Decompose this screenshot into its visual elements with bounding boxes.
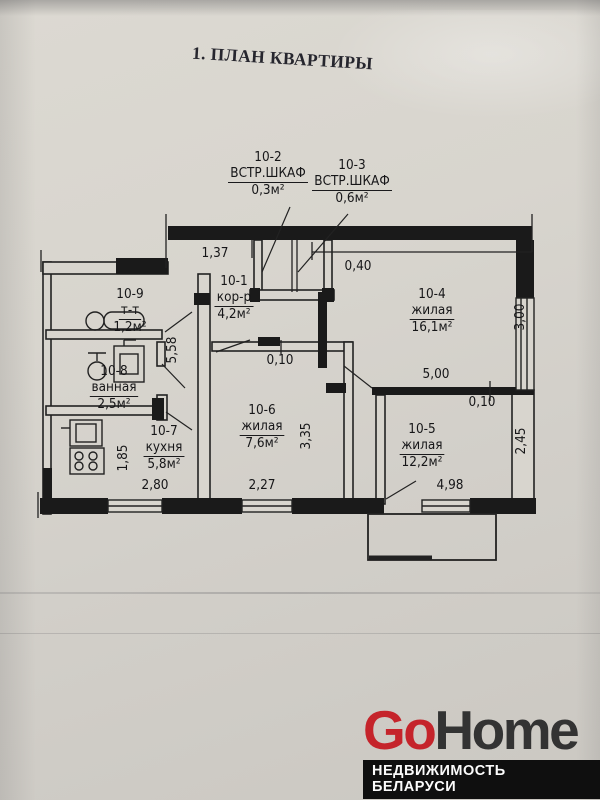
dimension-label: 2,27 xyxy=(236,478,288,494)
room-area: 16,1м² xyxy=(391,320,473,336)
room-area: 7,6м² xyxy=(221,436,303,452)
dimension-label: 3,35 xyxy=(299,416,315,457)
dimension-label: 0,10 xyxy=(254,353,306,369)
dimension-label: 5,58 xyxy=(165,330,181,371)
room-name: жилая xyxy=(240,419,285,436)
dimension-label: 5,00 xyxy=(410,367,462,383)
room-id: 10-3 xyxy=(300,158,404,174)
logo-go-text: Go xyxy=(363,699,434,761)
dimension-label: 1,37 xyxy=(187,246,243,262)
room-id: 10-8 xyxy=(71,364,157,380)
dimension-label: 1,85 xyxy=(116,438,132,479)
room-id: 10-7 xyxy=(123,424,205,440)
logo-home-text: Home xyxy=(434,699,577,761)
room-id: 10-1 xyxy=(193,274,275,290)
room-name: т-т xyxy=(119,303,141,320)
room-name: ВСТР.ШКАФ xyxy=(228,166,307,183)
scanned-floor-plan-photo: 1. ПЛАН КВАРТИРЫ xyxy=(0,0,600,800)
balcony-outline xyxy=(368,514,496,560)
closet-partitions xyxy=(292,240,297,292)
dimension-label: 3,00 xyxy=(513,297,529,338)
room-name: ванная xyxy=(90,380,139,397)
room-name: жилая xyxy=(410,303,455,320)
room-name: жилая xyxy=(400,438,445,455)
room-label-10-5: 10-5 жилая 12,2м² xyxy=(381,422,463,471)
room-area: 5,8м² xyxy=(123,457,205,473)
room-area: 0,6м² xyxy=(300,191,404,207)
stove-icon xyxy=(70,448,104,474)
room-name: кухня xyxy=(144,440,185,457)
room-label-10-8: 10-8 ванная 2,5м² xyxy=(71,364,157,413)
room-id: 10-4 xyxy=(391,287,473,303)
gohome-watermark: GoHome НЕДВИЖИМОСТЬ БЕЛАРУСИ xyxy=(363,702,600,799)
kitchen-sink-icon xyxy=(61,420,102,446)
gohome-logo: GoHome xyxy=(363,702,600,758)
room-label-10-3: 10-3 ВСТР.ШКАФ 0,6м² xyxy=(300,158,404,207)
room-area: 12,2м² xyxy=(381,455,463,471)
room-label-10-1: 10-1 кор-р 4,2м² xyxy=(193,274,275,323)
room-id: 10-9 xyxy=(91,287,169,303)
room-label-10-6: 10-6 жилая 7,6м² xyxy=(221,403,303,452)
room-name: ВСТР.ШКАФ xyxy=(312,174,391,191)
dimension-label: 2,45 xyxy=(514,421,530,462)
gohome-tagline-badge: НЕДВИЖИМОСТЬ БЕЛАРУСИ xyxy=(363,760,600,799)
room-id: 10-6 xyxy=(221,403,303,419)
room-area: 2,5м² xyxy=(71,397,157,413)
room-label-10-4: 10-4 жилая 16,1м² xyxy=(391,287,473,336)
room-area: 1,2м² xyxy=(91,320,169,336)
dimension-label: 0,10 xyxy=(456,395,508,411)
room-label-10-9: 10-9 т-т 1,2м² xyxy=(91,287,169,336)
room-area: 4,2м² xyxy=(193,307,275,323)
dimension-label: 4,98 xyxy=(424,478,476,494)
room-id: 10-5 xyxy=(381,422,463,438)
dimension-label: 2,80 xyxy=(129,478,181,494)
room-label-10-7: 10-7 кухня 5,8м² xyxy=(123,424,205,473)
room-name: кор-р xyxy=(215,290,253,307)
dimension-label: 0,40 xyxy=(332,259,384,275)
